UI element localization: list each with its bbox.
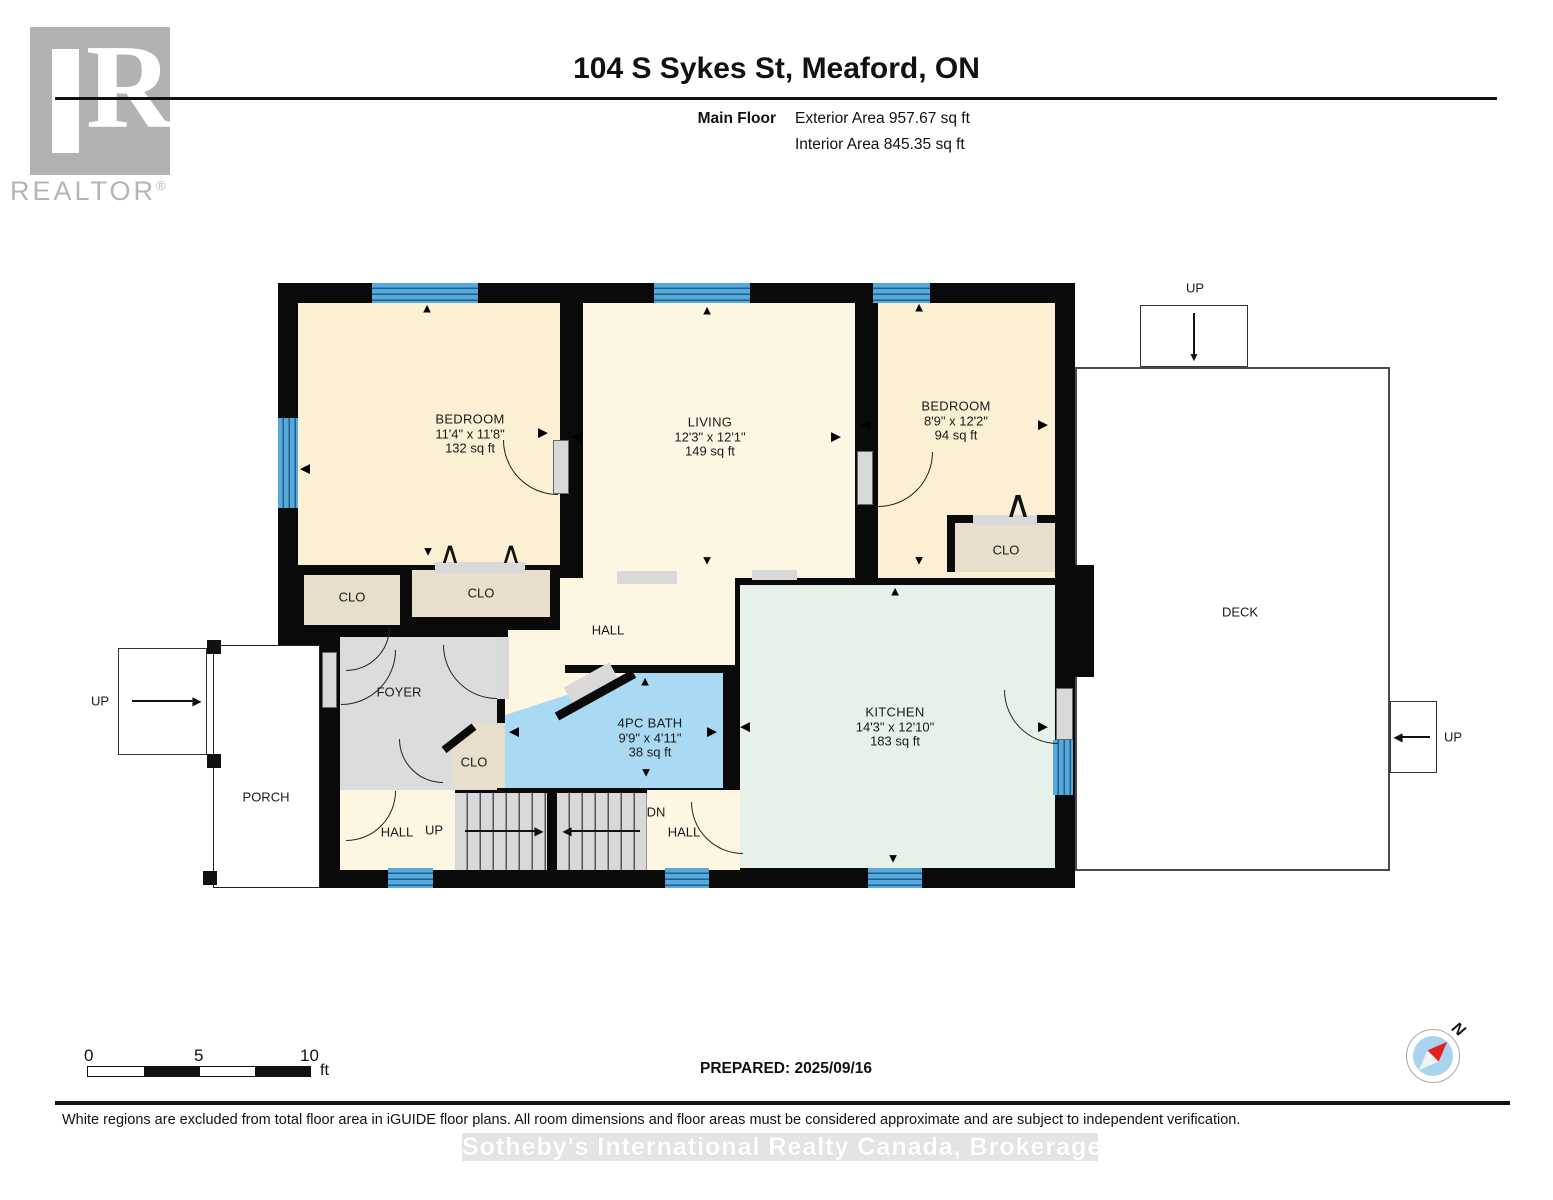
bifold-door-icon: ∧ (439, 539, 461, 569)
window-icon (868, 868, 922, 888)
pano-arrow-icon: ▼ (887, 852, 900, 865)
stair-arrow-right-icon: ▶ (192, 695, 201, 707)
pano-arrow-icon: ◀ (509, 725, 519, 738)
hall-bottom-right-label: HALL (668, 825, 701, 840)
window-icon (1053, 740, 1073, 795)
floor-plan: ▶ ◀ ▶ ▼ ◀ BEDROOM 11'4" x 11'8" 132 sq f… (0, 0, 1553, 1200)
pano-arrow-icon: ▼ (422, 545, 435, 558)
scale-bar (87, 1066, 311, 1077)
scale-segment (255, 1067, 310, 1076)
stair-arrow-right-icon: ▶ (534, 825, 543, 837)
closet-mid-label: CLO (468, 586, 495, 601)
stairs-up-label: UP (425, 823, 443, 838)
header-divider (55, 97, 1497, 100)
pano-arrow-icon: ▶ (707, 725, 717, 738)
footer-divider (55, 1101, 1510, 1105)
door-leaf (322, 652, 337, 708)
window-icon (665, 868, 709, 888)
pano-arrow-icon: ▲ (639, 675, 652, 688)
pano-arrow-icon: ◀ (300, 462, 310, 475)
door-leaf (1056, 688, 1073, 740)
pano-arrow-icon: ▶ (831, 430, 841, 443)
north-compass-icon: N (1406, 1029, 1460, 1083)
stair-arrow-line (570, 830, 640, 832)
window-icon (278, 418, 298, 508)
bath-label: 4PC BATH 9'9" x 4'11" 38 sq ft (617, 716, 682, 760)
porch-post (203, 871, 217, 885)
scale-tick-10: 10 (300, 1046, 319, 1066)
scale-unit: ft (320, 1062, 329, 1080)
stair-arrow-left-icon: ◀ (1393, 731, 1402, 743)
doorway-threshold (752, 570, 797, 580)
hall-bottom-left-label: HALL (381, 825, 414, 840)
pano-arrow-icon: ▶ (538, 426, 548, 439)
doorway-threshold (617, 571, 677, 584)
porch-post (207, 754, 221, 768)
scale-segment (200, 1067, 255, 1076)
doorway-threshold (497, 637, 509, 699)
deck-label: DECK (1222, 605, 1258, 620)
porch-area (213, 645, 320, 888)
wall (947, 515, 955, 572)
living-label: LIVING 12'3" x 12'1" 149 sq ft (674, 415, 745, 459)
disclaimer-text: White regions are excluded from total fl… (62, 1112, 1262, 1128)
pano-arrow-icon: ▲ (913, 301, 926, 314)
prepared-date: PREPARED: 2025/09/16 (700, 1060, 872, 1078)
floor-plan-page: { "header": { "logo_text": "REALTOR", "l… (0, 0, 1553, 1200)
brokerage-watermark: Sotheby's International Realty Canada, B… (462, 1133, 1098, 1161)
hall-top-label: HALL (592, 623, 625, 638)
pano-arrow-icon: ◀ (861, 418, 871, 431)
stair-arrow-line (132, 700, 194, 702)
pano-arrow-icon: ▶ (1038, 418, 1048, 431)
window-icon (388, 868, 433, 888)
pano-arrow-icon: ▼ (701, 554, 714, 567)
pano-arrow-icon: ▼ (913, 554, 926, 567)
stair-divider-wall (547, 793, 557, 870)
stair-arrow-line (465, 830, 535, 832)
closet-right-label: CLO (993, 543, 1020, 558)
door-leaf (553, 440, 569, 494)
stair-arrow-line (1193, 313, 1195, 355)
porch-label: PORCH (243, 790, 290, 805)
pano-arrow-icon: ◀ (740, 720, 750, 733)
bedroom-left-floor (298, 303, 560, 565)
scale-segment (88, 1067, 144, 1076)
scale-segment (144, 1067, 200, 1076)
stair-arrow-line (1398, 736, 1430, 738)
stairs-dn-label: DN (647, 805, 666, 820)
pano-arrow-icon: ▶ (1038, 720, 1048, 733)
pano-arrow-icon: ▲ (421, 302, 434, 315)
pano-arrow-icon: ▲ (701, 304, 714, 317)
bifold-door-icon: ∧ (500, 539, 522, 569)
bifold-door-icon: ∧ (1004, 486, 1032, 524)
closet-foyer-label: CLO (461, 755, 488, 770)
pano-arrow-icon: ◀ (572, 430, 582, 443)
kitchen-label: KITCHEN 14'3" x 12'10" 183 sq ft (856, 705, 935, 749)
porch-stairs-up-label: UP (91, 694, 109, 709)
window-icon (654, 283, 750, 303)
deck-top-stairs-up-label: UP (1186, 281, 1204, 296)
scale-tick-0: 0 (84, 1046, 93, 1066)
hall-top-floor (560, 578, 735, 665)
pano-arrow-icon: ▲ (889, 585, 902, 598)
stair-arrow-left-icon: ◀ (562, 825, 571, 837)
closet-left-label: CLO (339, 590, 366, 605)
foyer-label: FOYER (377, 685, 422, 700)
wall-stub (1075, 565, 1094, 677)
scale-tick-5: 5 (194, 1046, 203, 1066)
door-leaf (857, 451, 873, 505)
bedroom-left-label: BEDROOM 11'4" x 11'8" 132 sq ft (435, 412, 504, 456)
deck-right-stairs-up-label: UP (1444, 730, 1462, 745)
stair-arrow-down-icon: ▼ (1188, 351, 1200, 363)
porch-post (207, 640, 221, 654)
pano-arrow-icon: ▼ (640, 766, 653, 779)
bedroom-right-label: BEDROOM 8'9" x 12'2" 94 sq ft (921, 399, 990, 443)
